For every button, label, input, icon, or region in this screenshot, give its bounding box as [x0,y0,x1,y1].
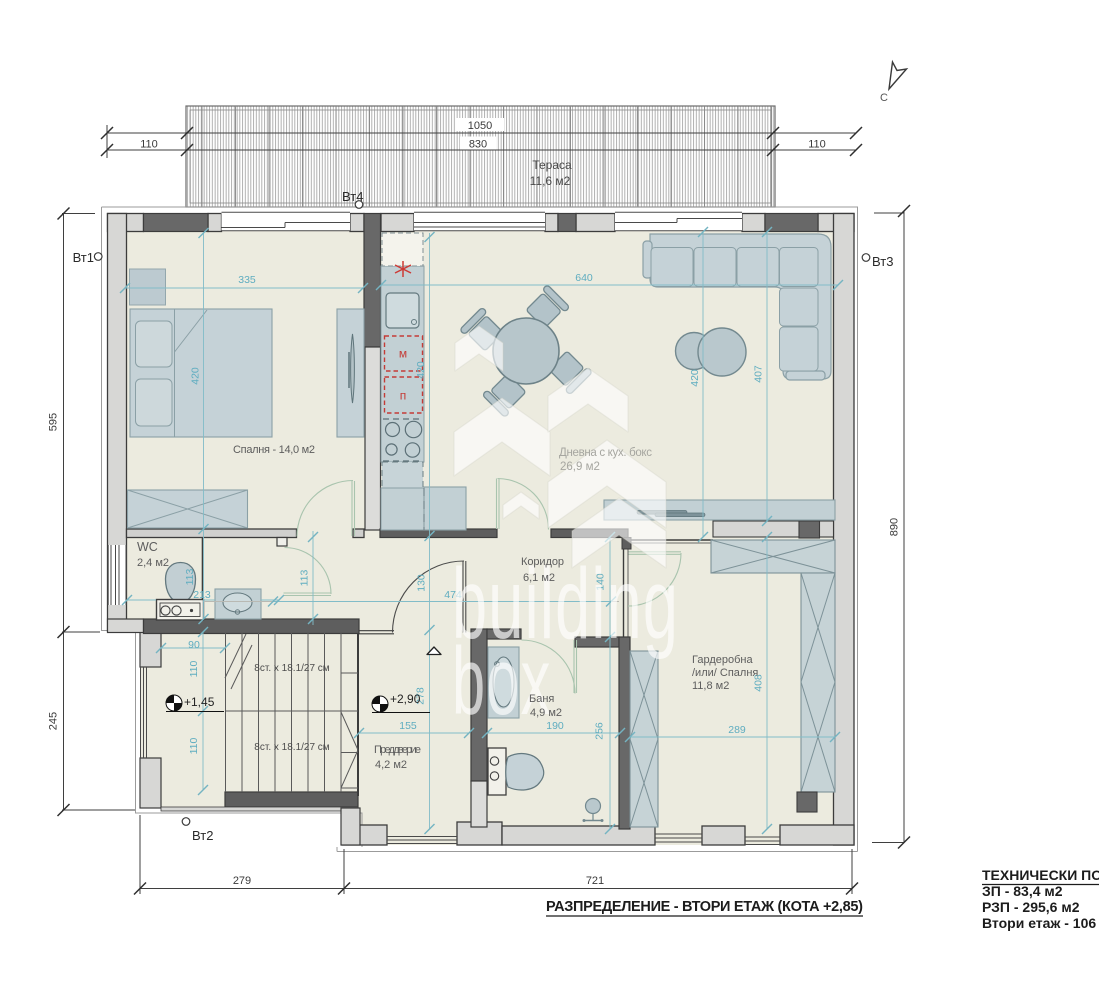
svg-text:ТЕХНИЧЕСКИ ПОКАЗАТЕЛИ: ТЕХНИЧЕСКИ ПОКАЗАТЕЛИ [982,867,1099,883]
svg-text:8ст. x 18.1/27 см: 8ст. x 18.1/27 см [254,742,330,753]
svg-text:890: 890 [889,518,901,536]
svg-text:289: 289 [728,724,746,736]
svg-text:Вт1: Вт1 [73,250,94,265]
svg-text:ЗП - 83,4 м2: ЗП - 83,4 м2 [982,883,1063,899]
svg-text:Дневна с кух. бокс: Дневна с кух. бокс [559,447,652,459]
svg-text:110: 110 [188,737,200,754]
svg-text:90: 90 [188,639,200,651]
svg-text:595: 595 [48,413,60,431]
svg-text:335: 335 [238,274,256,286]
svg-text:420: 420 [689,369,701,387]
svg-text:245: 245 [48,712,60,730]
svg-text:155: 155 [399,720,417,732]
svg-text:+2,90: +2,90 [390,692,421,706]
svg-text:640: 640 [575,272,593,284]
svg-text:130: 130 [416,574,428,592]
svg-text:213: 213 [193,589,211,601]
svg-text:407: 407 [753,365,765,383]
svg-text:420: 420 [415,361,427,379]
svg-text:2,4 м2: 2,4 м2 [137,557,169,569]
svg-text:Баня: Баня [529,693,554,705]
svg-text:4,9 м2: 4,9 м2 [530,707,562,719]
svg-text:4,2 м2: 4,2 м2 [375,759,407,771]
svg-text:110: 110 [188,660,200,677]
svg-text:721: 721 [586,875,604,887]
svg-text:Вт2: Вт2 [192,828,213,843]
svg-text:11,6 м2: 11,6 м2 [530,174,571,188]
svg-text:Вт3: Вт3 [872,254,893,269]
svg-text:279: 279 [233,875,251,887]
svg-text:Преддверие: Преддверие [374,744,421,756]
svg-text:+1,45: +1,45 [184,695,215,709]
svg-text:С: С [880,92,888,104]
svg-text:26,9 м2: 26,9 м2 [560,461,600,473]
svg-text:м: м [399,347,407,361]
svg-text:/или/ Спалня: /или/ Спалня [692,667,758,679]
svg-text:Гардеробна: Гардеробна [692,654,753,666]
svg-text:Коридор: Коридор [521,556,564,568]
svg-text:п: п [400,389,407,403]
svg-text:11,8 м2: 11,8 м2 [692,680,729,692]
svg-text:110: 110 [140,139,158,151]
svg-text:256: 256 [594,722,606,740]
svg-text:Спалня - 14,0 м2: Спалня - 14,0 м2 [233,444,315,456]
svg-text:WC: WC [137,540,158,554]
svg-text:420: 420 [190,367,202,385]
svg-text:113: 113 [299,569,311,586]
svg-text:Тераса: Тераса [532,158,572,172]
svg-text:РЗП - 295,6 м2: РЗП - 295,6 м2 [982,899,1080,915]
svg-text:РАЗПРЕДЕЛЕНИЕ - ВТОРИ ЕТАЖ (КО: РАЗПРЕДЕЛЕНИЕ - ВТОРИ ЕТАЖ (КОТА +2,85) [546,899,863,915]
svg-text:113: 113 [184,568,196,585]
svg-text:8ст. x 18.1/27 см: 8ст. x 18.1/27 см [254,663,330,674]
svg-text:Вт4: Вт4 [342,189,363,204]
svg-text:1050: 1050 [468,120,492,132]
svg-text:110: 110 [808,139,826,151]
svg-text:6,1 м2: 6,1 м2 [523,572,555,584]
svg-text:Втори етаж - 106: Втори етаж - 106 [982,915,1096,931]
svg-text:830: 830 [469,139,487,151]
